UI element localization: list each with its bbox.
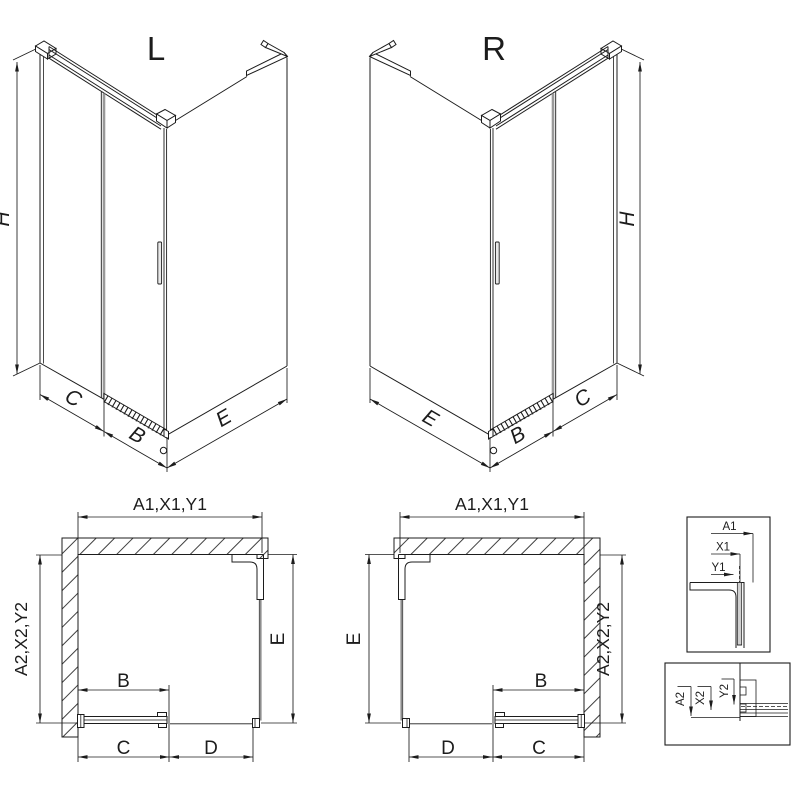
plan-right-depth-label: E bbox=[344, 633, 365, 646]
detail-bottom-a2-label: A2 bbox=[675, 692, 687, 706]
sliding-door-plan bbox=[78, 713, 168, 728]
iso-geometry-right bbox=[370, 41, 645, 473]
wall-profile-bracket bbox=[36, 41, 57, 59]
iso-geometry bbox=[13, 41, 288, 473]
plan-left-depth-label: E bbox=[268, 633, 289, 646]
bottom-door-guide bbox=[160, 447, 166, 453]
detail-rail-bracket bbox=[740, 680, 756, 717]
fixed-glass-top-edge bbox=[176, 77, 248, 121]
detail-bottom-y2-label: Y2 bbox=[719, 684, 731, 698]
iso-right-door-label: B bbox=[506, 422, 530, 449]
detail-profile-section bbox=[690, 583, 744, 649]
drawing-page: L H C B E R H E B C A1,X1,Y1 A2,X2,Y2 E … bbox=[0, 0, 800, 800]
detail-top-a1-label: A1 bbox=[722, 521, 736, 533]
iso-right-height-label: H bbox=[616, 211, 639, 227]
height-dimension bbox=[13, 47, 40, 376]
plan-left-side-label: A2,X2,Y2 bbox=[11, 602, 31, 676]
detail-rail-lines bbox=[740, 704, 788, 717]
iso-left-title: L bbox=[147, 30, 165, 67]
iso-left-door-label: B bbox=[125, 422, 149, 449]
iso-right-title: R bbox=[482, 30, 506, 67]
corner-wall-bracket bbox=[247, 41, 288, 76]
door-handle bbox=[158, 242, 162, 284]
plan-right-c-label: C bbox=[532, 738, 546, 759]
plan-right-side-label: A2,X2,Y2 bbox=[593, 602, 613, 676]
glass-bottom-foot bbox=[253, 719, 260, 728]
plan-right-door-label: B bbox=[535, 671, 548, 692]
glass-wall-profile bbox=[232, 555, 264, 600]
side-panel-edge bbox=[40, 52, 44, 364]
plan-left-top-label: A1,X1,Y1 bbox=[133, 494, 207, 514]
corner-post bbox=[164, 128, 167, 435]
plan-left-c-label: C bbox=[117, 738, 131, 759]
iso-left-height-label: H bbox=[0, 211, 14, 227]
detail-top-profile bbox=[687, 517, 770, 652]
shower-enclosure-technical-drawing: L H C B E R H E B C A1,X1,Y1 A2,X2,Y2 E … bbox=[0, 0, 800, 800]
iso-right-side-label: C bbox=[571, 384, 596, 412]
plan-bottom-dimensions bbox=[78, 728, 253, 762]
wall-hatch-left-plan bbox=[62, 538, 268, 737]
side-glass-panel bbox=[259, 600, 261, 721]
plan-right-d-label: D bbox=[441, 738, 455, 759]
detail-top-y1-label: Y1 bbox=[711, 562, 725, 574]
plan-geometry-right bbox=[365, 512, 626, 762]
base-dimensions bbox=[40, 365, 287, 472]
labels: L H C B E R H E B C A1,X1,Y1 A2,X2,Y2 E … bbox=[0, 30, 737, 759]
iso-left-front-label: E bbox=[212, 404, 236, 431]
detail-bottom-x2-label: X2 bbox=[695, 691, 707, 705]
detail-top-x1-label: X1 bbox=[716, 542, 730, 554]
plan-left-d-label: D bbox=[204, 738, 218, 759]
plan-left-door-label: B bbox=[117, 671, 130, 692]
iso-right-front-label: E bbox=[418, 405, 442, 432]
plan-right-top-label: A1,X1,Y1 bbox=[455, 494, 529, 514]
